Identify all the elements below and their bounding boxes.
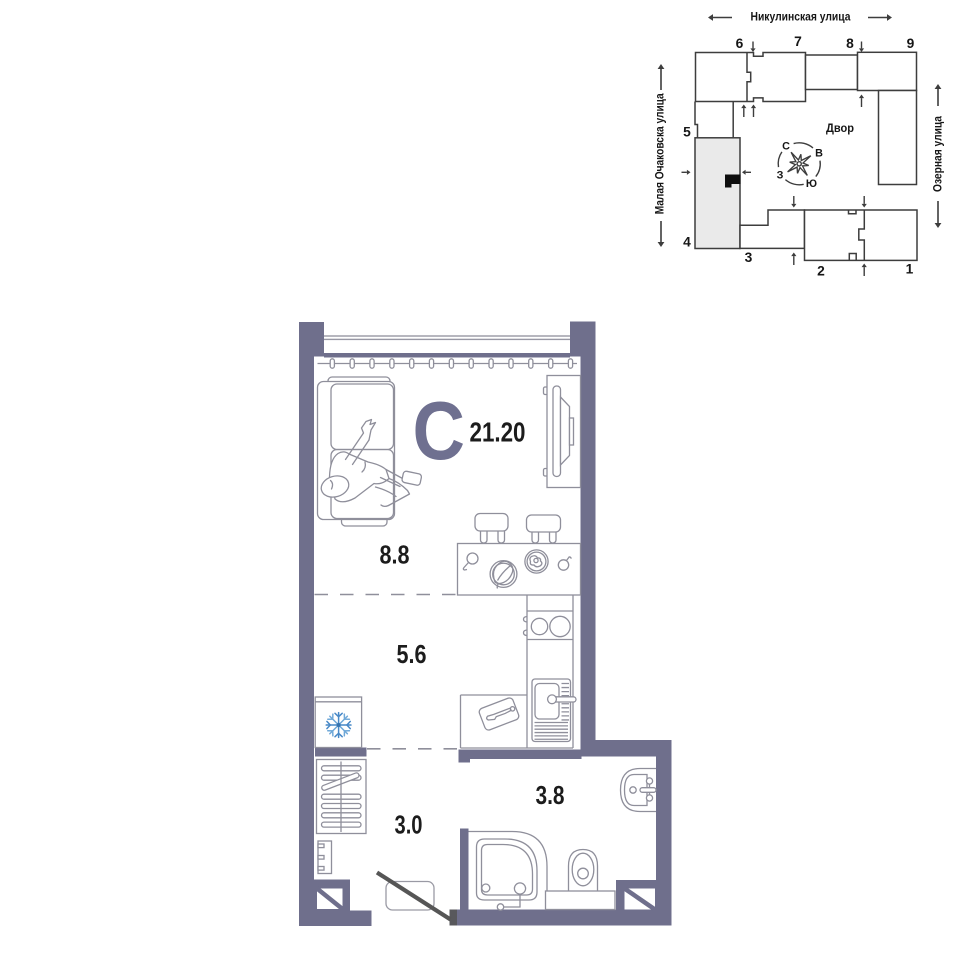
svg-text:С: С: [413, 384, 466, 477]
svg-text:З: З: [777, 170, 784, 182]
svg-text:Никулинская улица: Никулинская улица: [751, 10, 851, 24]
svg-text:3.0: 3.0: [395, 810, 423, 840]
svg-text:9: 9: [907, 36, 915, 51]
svg-text:Малая Очаковска улица: Малая Очаковска улица: [654, 93, 667, 214]
svg-text:Озерная улица: Озерная улица: [931, 116, 944, 192]
svg-text:В: В: [815, 148, 823, 160]
svg-text:8.8: 8.8: [380, 540, 410, 570]
svg-text:6: 6: [736, 36, 744, 51]
svg-text:Ю: Ю: [806, 178, 817, 190]
svg-text:21.20: 21.20: [470, 417, 526, 448]
svg-text:7: 7: [794, 34, 802, 49]
svg-text:1: 1: [906, 262, 914, 277]
svg-text:Двор: Двор: [826, 121, 854, 135]
svg-text:5: 5: [683, 125, 691, 140]
svg-text:4: 4: [683, 235, 691, 250]
svg-text:2: 2: [817, 264, 825, 279]
svg-text:С: С: [782, 141, 790, 153]
svg-text:8: 8: [846, 36, 854, 51]
svg-text:5.6: 5.6: [397, 639, 427, 669]
svg-text:3.8: 3.8: [536, 780, 565, 810]
svg-text:3: 3: [745, 250, 753, 265]
